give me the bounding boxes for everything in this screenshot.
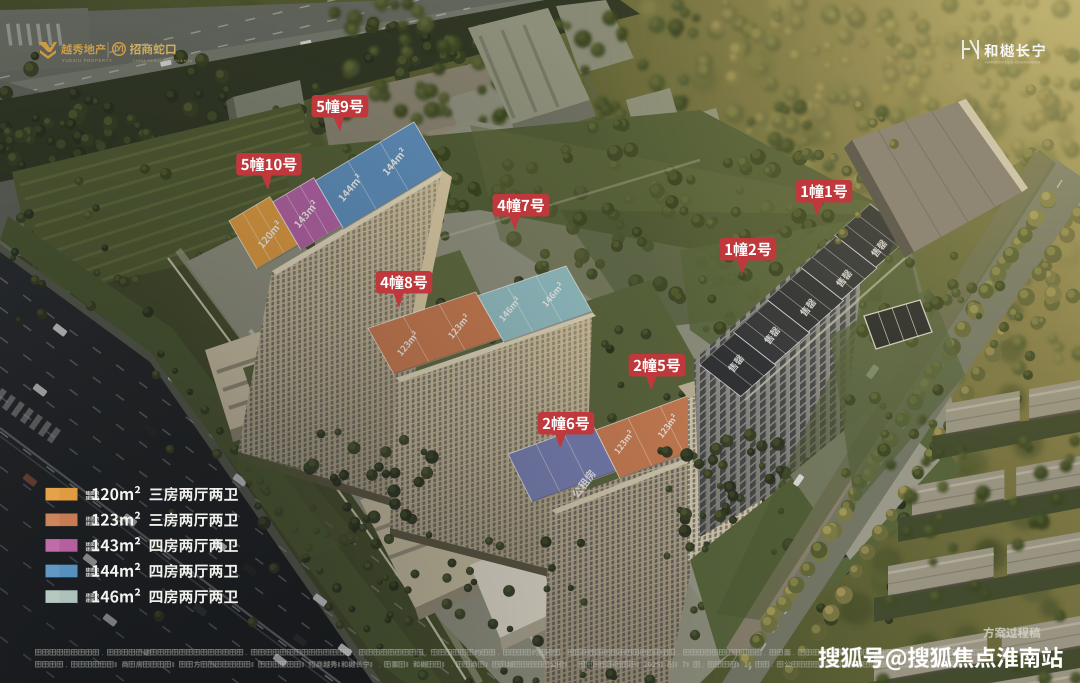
svg-text:HARMONIOUS CHANGNING: HARMONIOUS CHANGNING	[985, 61, 1041, 65]
svg-text:YUEXIU PROPERTY: YUEXIU PROPERTY	[62, 58, 113, 63]
svg-text:CHINA MERCHANTS SHEKOU: CHINA MERCHANTS SHEKOU	[133, 59, 193, 63]
